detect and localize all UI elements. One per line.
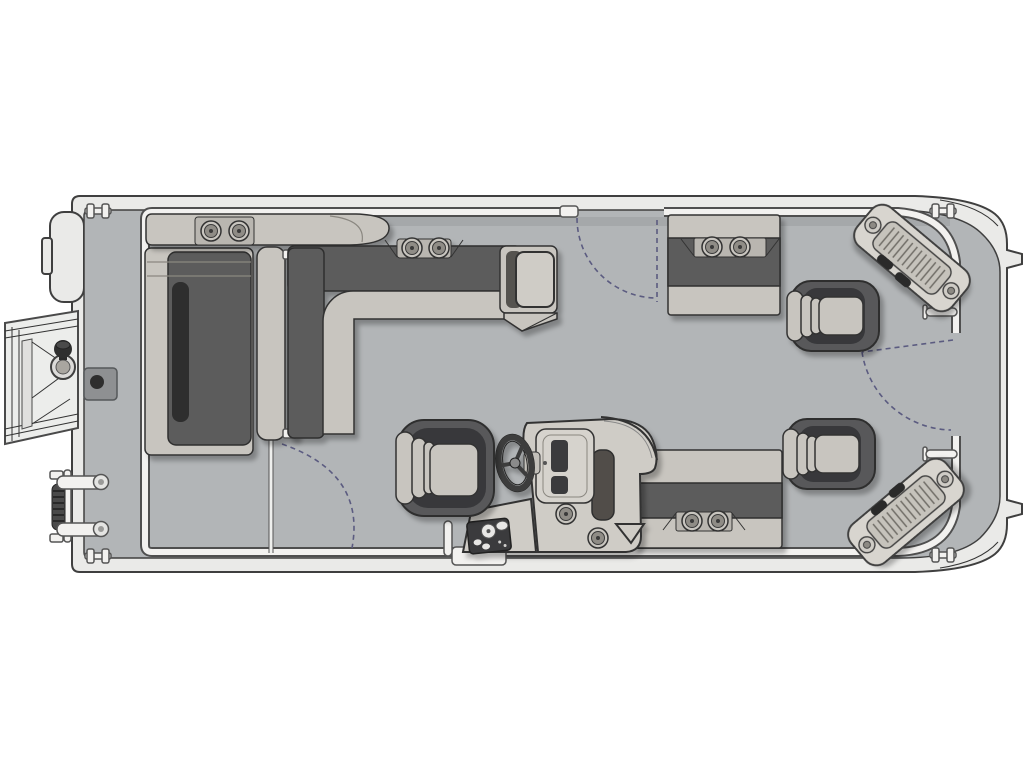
cup-holder (556, 504, 576, 524)
dash-screen (551, 440, 568, 472)
armrest-pad (516, 252, 554, 307)
deck-access-plate (84, 368, 117, 400)
fitting-collar (56, 360, 70, 374)
bow-chaise-lounge (145, 248, 253, 455)
stern-captain-chair-top (787, 281, 879, 351)
backrest-pad (146, 214, 389, 245)
rung-end-knob-center (98, 479, 104, 485)
floorplan-canvas (0, 0, 1024, 768)
bow-nose-step (42, 238, 52, 274)
stern-captain-chair-bottom (783, 419, 875, 489)
chaise-cushion-accent (172, 282, 189, 422)
plate-latch (90, 375, 104, 389)
bow-backrest-strip (146, 214, 389, 245)
cup-holder (708, 511, 728, 531)
console-side-pocket (592, 450, 614, 520)
fitting-cap-top (56, 341, 70, 349)
cup-holder (229, 221, 249, 241)
fence-post (444, 521, 452, 556)
ski-tow-fitting (51, 340, 75, 379)
rung-end-knob-center (98, 526, 104, 532)
dash-gauge-block (551, 476, 568, 494)
cup-holder (429, 238, 449, 258)
helm-captain-chair (396, 420, 494, 516)
stern-seat-unit-top (668, 215, 780, 315)
divider-pad (257, 247, 285, 440)
bow-nose-cone (50, 212, 84, 302)
cup-holder (588, 528, 608, 548)
ramp-walk-board (22, 339, 32, 429)
cup-holder (682, 511, 702, 531)
gate-latch (560, 206, 578, 217)
l-lounge-back-vertical (288, 248, 324, 438)
pontoon-floorplan-svg (0, 0, 1024, 768)
cup-holder (201, 221, 221, 241)
cup-holder (702, 237, 722, 257)
cup-holder (402, 238, 422, 258)
cup-holder (730, 237, 750, 257)
ignition-gauge-panel (466, 518, 511, 554)
dash-knob (543, 461, 547, 465)
grab-rail-lower (926, 450, 957, 458)
chair-seat-cushion (430, 444, 478, 496)
